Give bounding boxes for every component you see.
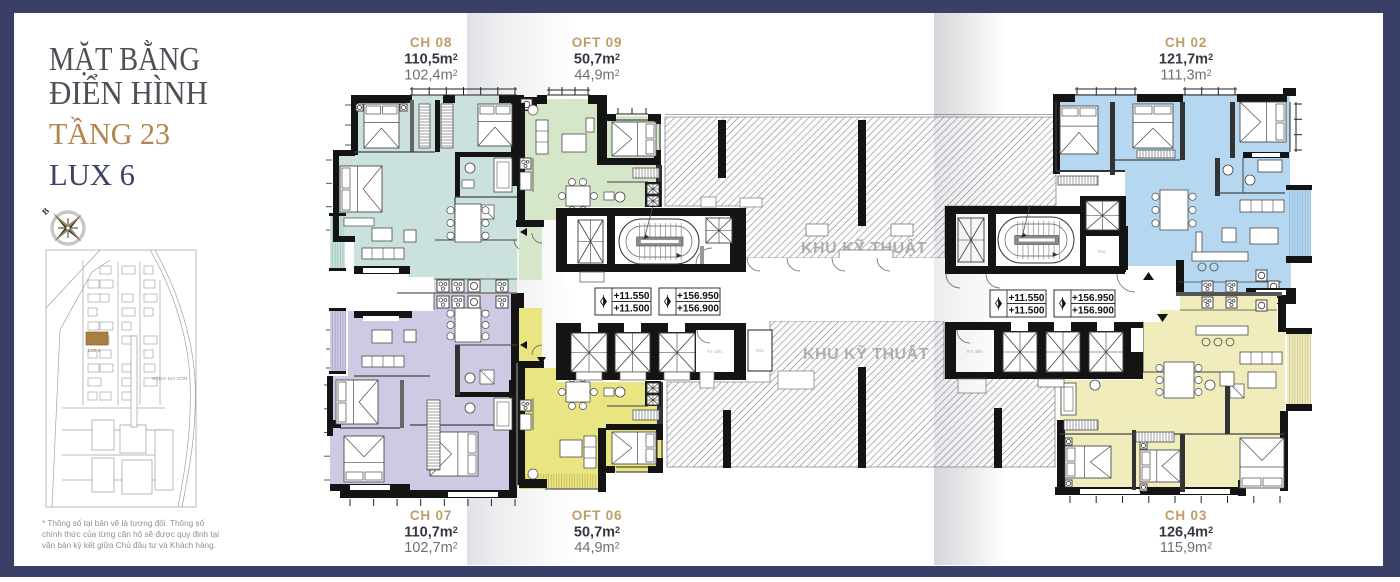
svg-text:44,9m2: 44,9m2 [574, 540, 619, 556]
svg-text:CH 02: CH 02 [1165, 35, 1207, 50]
svg-text:+11.550: +11.550 [614, 291, 650, 302]
svg-text:126,4m2: 126,4m2 [1159, 525, 1213, 541]
svg-text:50,7m2: 50,7m2 [574, 52, 620, 68]
svg-text:OFT 06: OFT 06 [572, 508, 623, 523]
svg-text:CH 07: CH 07 [410, 508, 452, 523]
svg-text:Rác: Rác [756, 348, 765, 353]
svg-text:LUX 6: LUX 6 [88, 348, 101, 353]
svg-text:102,4m2: 102,4m2 [404, 68, 457, 84]
svg-text:+156.950: +156.950 [1072, 293, 1114, 304]
svg-text:Rác: Rác [1098, 249, 1107, 254]
svg-text:+11.500: +11.500 [1009, 306, 1045, 317]
svg-text:111,3m2: 111,3m2 [1160, 68, 1211, 84]
svg-text:MẶT BẰNG: MẶT BẰNG [49, 40, 200, 78]
svg-text:CH 08: CH 08 [410, 35, 452, 50]
svg-text:121,7m2: 121,7m2 [1159, 52, 1213, 68]
svg-text:+11.500: +11.500 [614, 304, 650, 315]
svg-text:110,5m2: 110,5m2 [404, 52, 457, 68]
svg-text:văn bản ký kết giữa Chủ đầu tư: văn bản ký kết giữa Chủ đầu tư và Khách … [42, 541, 216, 550]
svg-text:110,7m2: 110,7m2 [404, 525, 457, 541]
svg-text:TẦNG 23: TẦNG 23 [49, 116, 170, 151]
svg-text:ĐIỂN HÌNH: ĐIỂN HÌNH [49, 74, 208, 112]
svg-text:+156.900: +156.900 [677, 304, 719, 315]
svg-text:CH 03: CH 03 [1165, 508, 1207, 523]
svg-text:102,7m2: 102,7m2 [404, 540, 457, 556]
svg-text:LUX 6: LUX 6 [49, 157, 135, 192]
svg-text:KHU KỸ THUẬT: KHU KỸ THUẬT [803, 343, 929, 363]
svg-text:KT điện: KT điện [707, 349, 723, 354]
svg-text:* Thông số tại bản vẽ là tương: * Thông số tại bản vẽ là tương đối. Thôn… [42, 519, 205, 528]
svg-text:chính thức của từng căn hộ sẽ: chính thức của từng căn hộ sẽ được quy đ… [42, 530, 219, 539]
svg-text:50,7m2: 50,7m2 [574, 525, 620, 541]
svg-text:+156.900: +156.900 [1072, 306, 1114, 317]
svg-text:SÔNG SÀI GÒN: SÔNG SÀI GÒN [152, 375, 188, 382]
svg-text:44,9m2: 44,9m2 [574, 68, 619, 84]
svg-text:+156.950: +156.950 [677, 291, 719, 302]
svg-text:115,9m2: 115,9m2 [1160, 540, 1212, 556]
svg-text:+11.550: +11.550 [1009, 293, 1045, 304]
svg-text:OFT 09: OFT 09 [572, 35, 623, 50]
